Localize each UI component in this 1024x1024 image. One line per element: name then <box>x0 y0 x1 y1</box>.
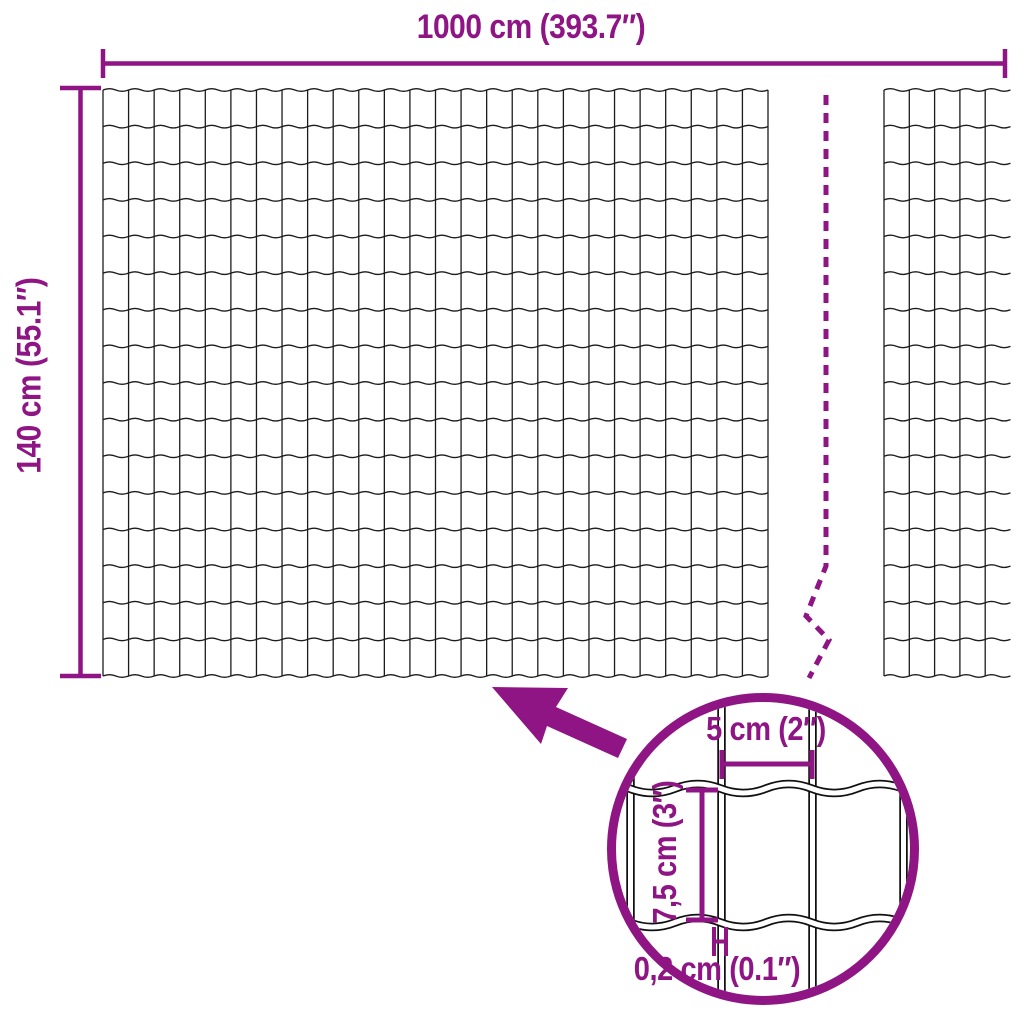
zoom-arrow-icon <box>492 687 627 758</box>
fence-mesh-left-section <box>103 89 768 678</box>
break-line <box>806 95 829 678</box>
fence-mesh-right-section <box>884 89 1011 678</box>
left-dimension <box>60 88 101 676</box>
diagram-canvas <box>0 0 1024 1024</box>
total-height-label: 140 cm (55.1″) <box>11 156 48 596</box>
total-width-label: 1000 cm (393.7″) <box>311 9 751 46</box>
wire-thickness-label: 0,2 cm (0.1″) <box>585 951 849 987</box>
top-dimension <box>103 49 1005 78</box>
dimension-diagram: 1000 cm (393.7″) 140 cm (55.1″) 5 cm (2″… <box>0 0 1024 1024</box>
